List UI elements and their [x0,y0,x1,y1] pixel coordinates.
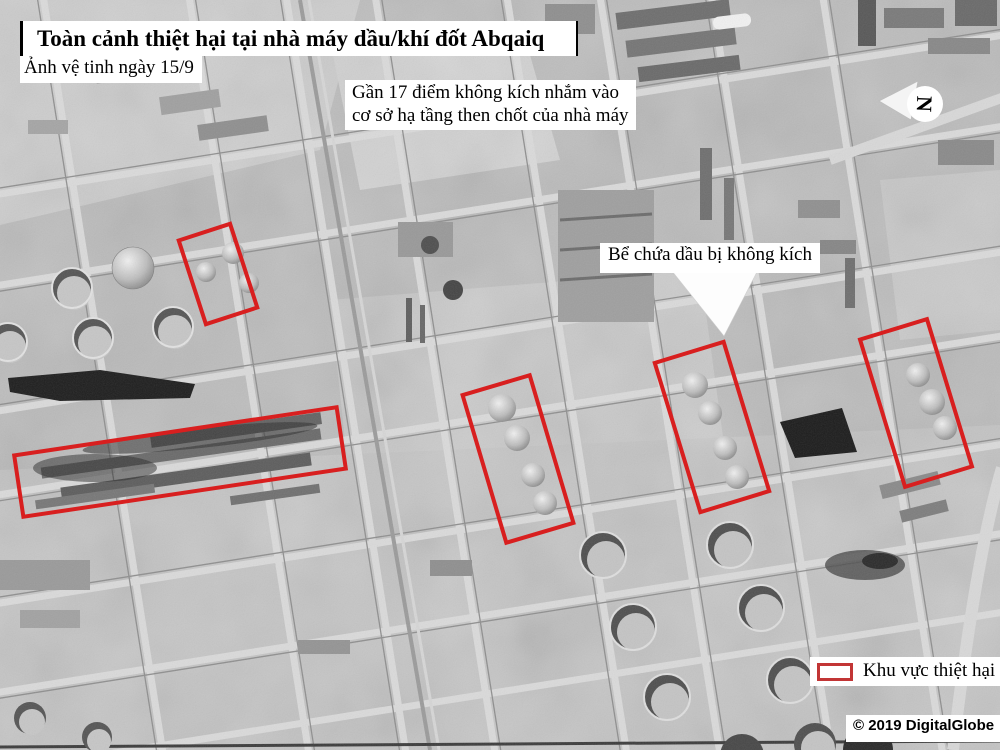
annotated-satellite-figure: N Toàn cảnh thiệt hại tại nhà máy dầu/kh… [0,0,1000,750]
figure-subtitle: Ảnh vệ tinh ngày 15/9 [20,56,202,83]
legend-damage-swatch-icon [817,663,853,681]
tank-note: Bể chứa dầu bị không kích [600,243,820,273]
legend-label: Khu vực thiệt hại [863,660,995,683]
credit: © 2019 DigitalGlobe [846,715,1000,742]
strikes-note-line2: cơ sở hạ tầng then chốt của nhà máy [352,104,629,127]
strikes-note: Gần 17 điểm không kích nhắm vào cơ sở hạ… [345,80,636,130]
figure-title: Toàn cảnh thiệt hại tại nhà máy dầu/khí … [20,21,578,56]
strikes-note-line1: Gần 17 điểm không kích nhắm vào [352,81,629,104]
legend: Khu vực thiệt hại [810,657,1000,686]
